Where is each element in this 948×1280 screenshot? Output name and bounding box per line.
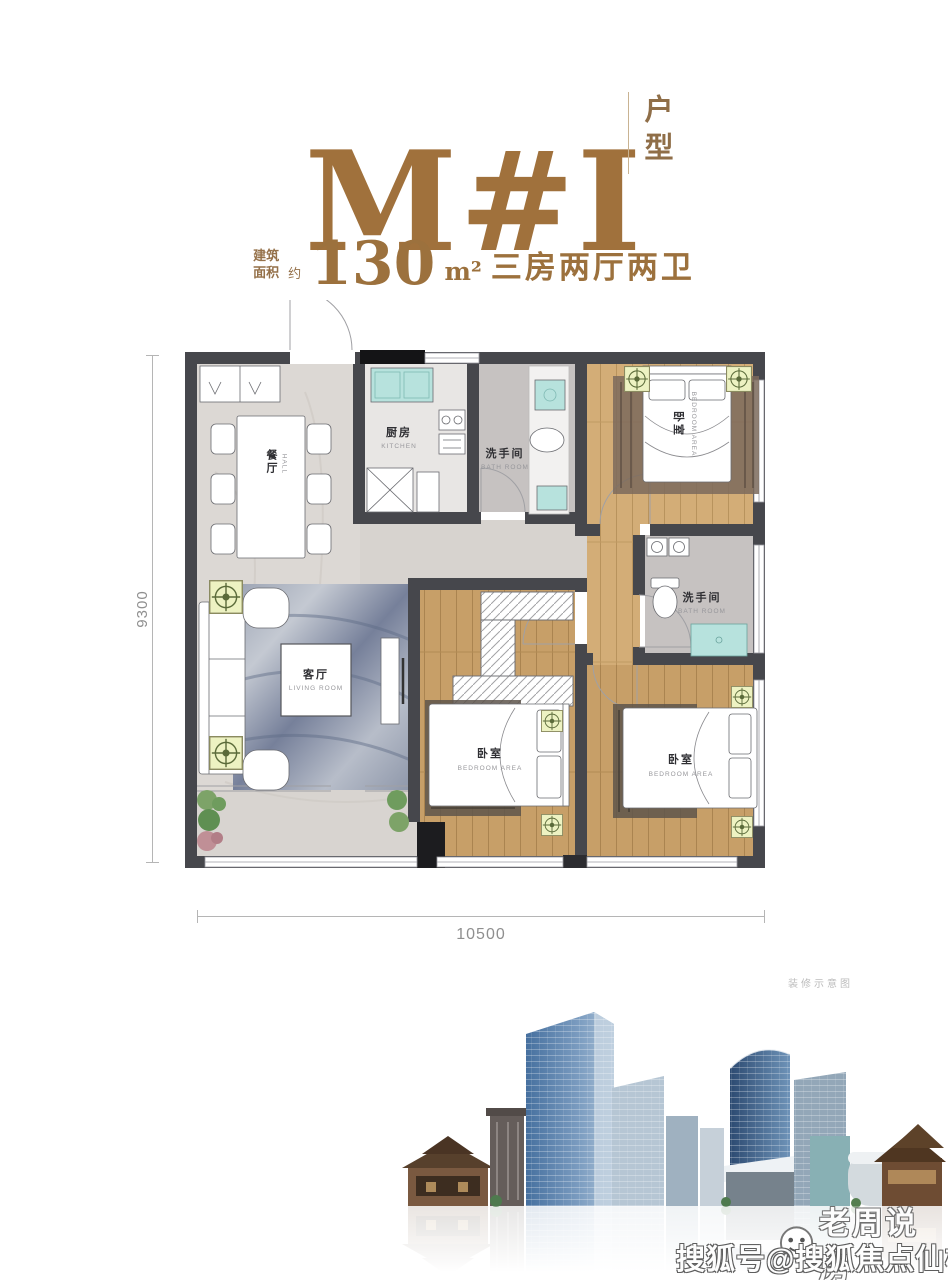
glass-slab-tower [612, 1076, 664, 1206]
area-prefix-line1: 建筑 [253, 248, 279, 265]
bedroom-mid-label-cn: 卧室 [477, 746, 503, 760]
bedroom-right-label-en: BEDROOM AREA [649, 771, 714, 778]
area-prefix: 建筑 面积 [253, 248, 279, 289]
lamp-icon [727, 367, 752, 392]
area-rooms-text: 三房两厅两卫 [491, 242, 695, 289]
watermark-account-line: 搜狐号@搜狐焦点仙桃站 [676, 1236, 948, 1278]
dimension-bottom-line [197, 916, 765, 917]
bedroom-top-label-cn: 卧室 [672, 411, 686, 437]
lamp-icon [210, 737, 243, 770]
area-unit: m² [444, 257, 481, 289]
area-line: 建筑 面积 约 130 m² 三房两厅两卫 [0, 240, 948, 289]
bedroom-right-label-cn: 卧室 [668, 752, 694, 766]
bedroom-mid-label-en: BEDROOM AREA [458, 765, 523, 772]
dimension-left: 9300 [140, 355, 164, 863]
unit-type-label: 户型 [636, 94, 678, 170]
lamp-icon [731, 816, 752, 837]
dimension-bottom: 10500 [197, 916, 765, 944]
right-tower [794, 1072, 850, 1206]
bath-top-label-en: BATH ROOM [481, 464, 529, 471]
mid-tower [666, 1116, 698, 1206]
title-divider [628, 92, 629, 174]
dimension-bottom-value: 10500 [197, 926, 765, 944]
dimension-left-line [152, 355, 153, 863]
kitchen-label-en: KITCHEN [381, 443, 417, 450]
lamp-icon [210, 581, 243, 614]
bath-right-label-cn: 洗手间 [683, 590, 722, 604]
page: M#I 户型 建筑 面积 约 130 m² 三房两厅两卫 [0, 0, 948, 1280]
area-prefix-line2: 面积 [253, 265, 279, 282]
bedroom-top-label-en: BEDROOM AREA [690, 392, 697, 457]
left-traditional-building [402, 1136, 494, 1206]
bath-top-fittings [529, 366, 569, 514]
dimension-left-value: 9300 [134, 590, 151, 627]
lamp-icon [731, 686, 752, 707]
living-label-cn: 客厅 [302, 667, 329, 681]
dining-label-cn: 餐厅 [265, 448, 279, 475]
right-traditional-building [874, 1124, 946, 1206]
dining-table [211, 416, 331, 558]
dining-label-en: HALL [281, 454, 288, 474]
bath-right-label-en: BATH ROOM [678, 608, 726, 615]
living-label-en: LIVING ROOM [289, 685, 343, 692]
render-note: 装修示意图 [788, 975, 853, 990]
lamp-icon [541, 814, 562, 835]
floor-plan: 餐厅 HALL 厨房 KITCHEN 洗手间 BATH ROOM 卧室 BEDR… [185, 300, 765, 868]
mid-tower-2 [700, 1128, 724, 1206]
lamp-icon [625, 367, 650, 392]
area-approx: 约 [288, 263, 301, 289]
brick-tower [486, 1108, 528, 1206]
glass-tower-main [526, 1012, 614, 1206]
bath-top-label-cn: 洗手间 [486, 446, 525, 460]
entry-closet [200, 366, 280, 402]
area-value: 130 [310, 240, 435, 289]
lamp-icon [541, 710, 562, 731]
kitchen-label-cn: 厨房 [386, 425, 412, 439]
